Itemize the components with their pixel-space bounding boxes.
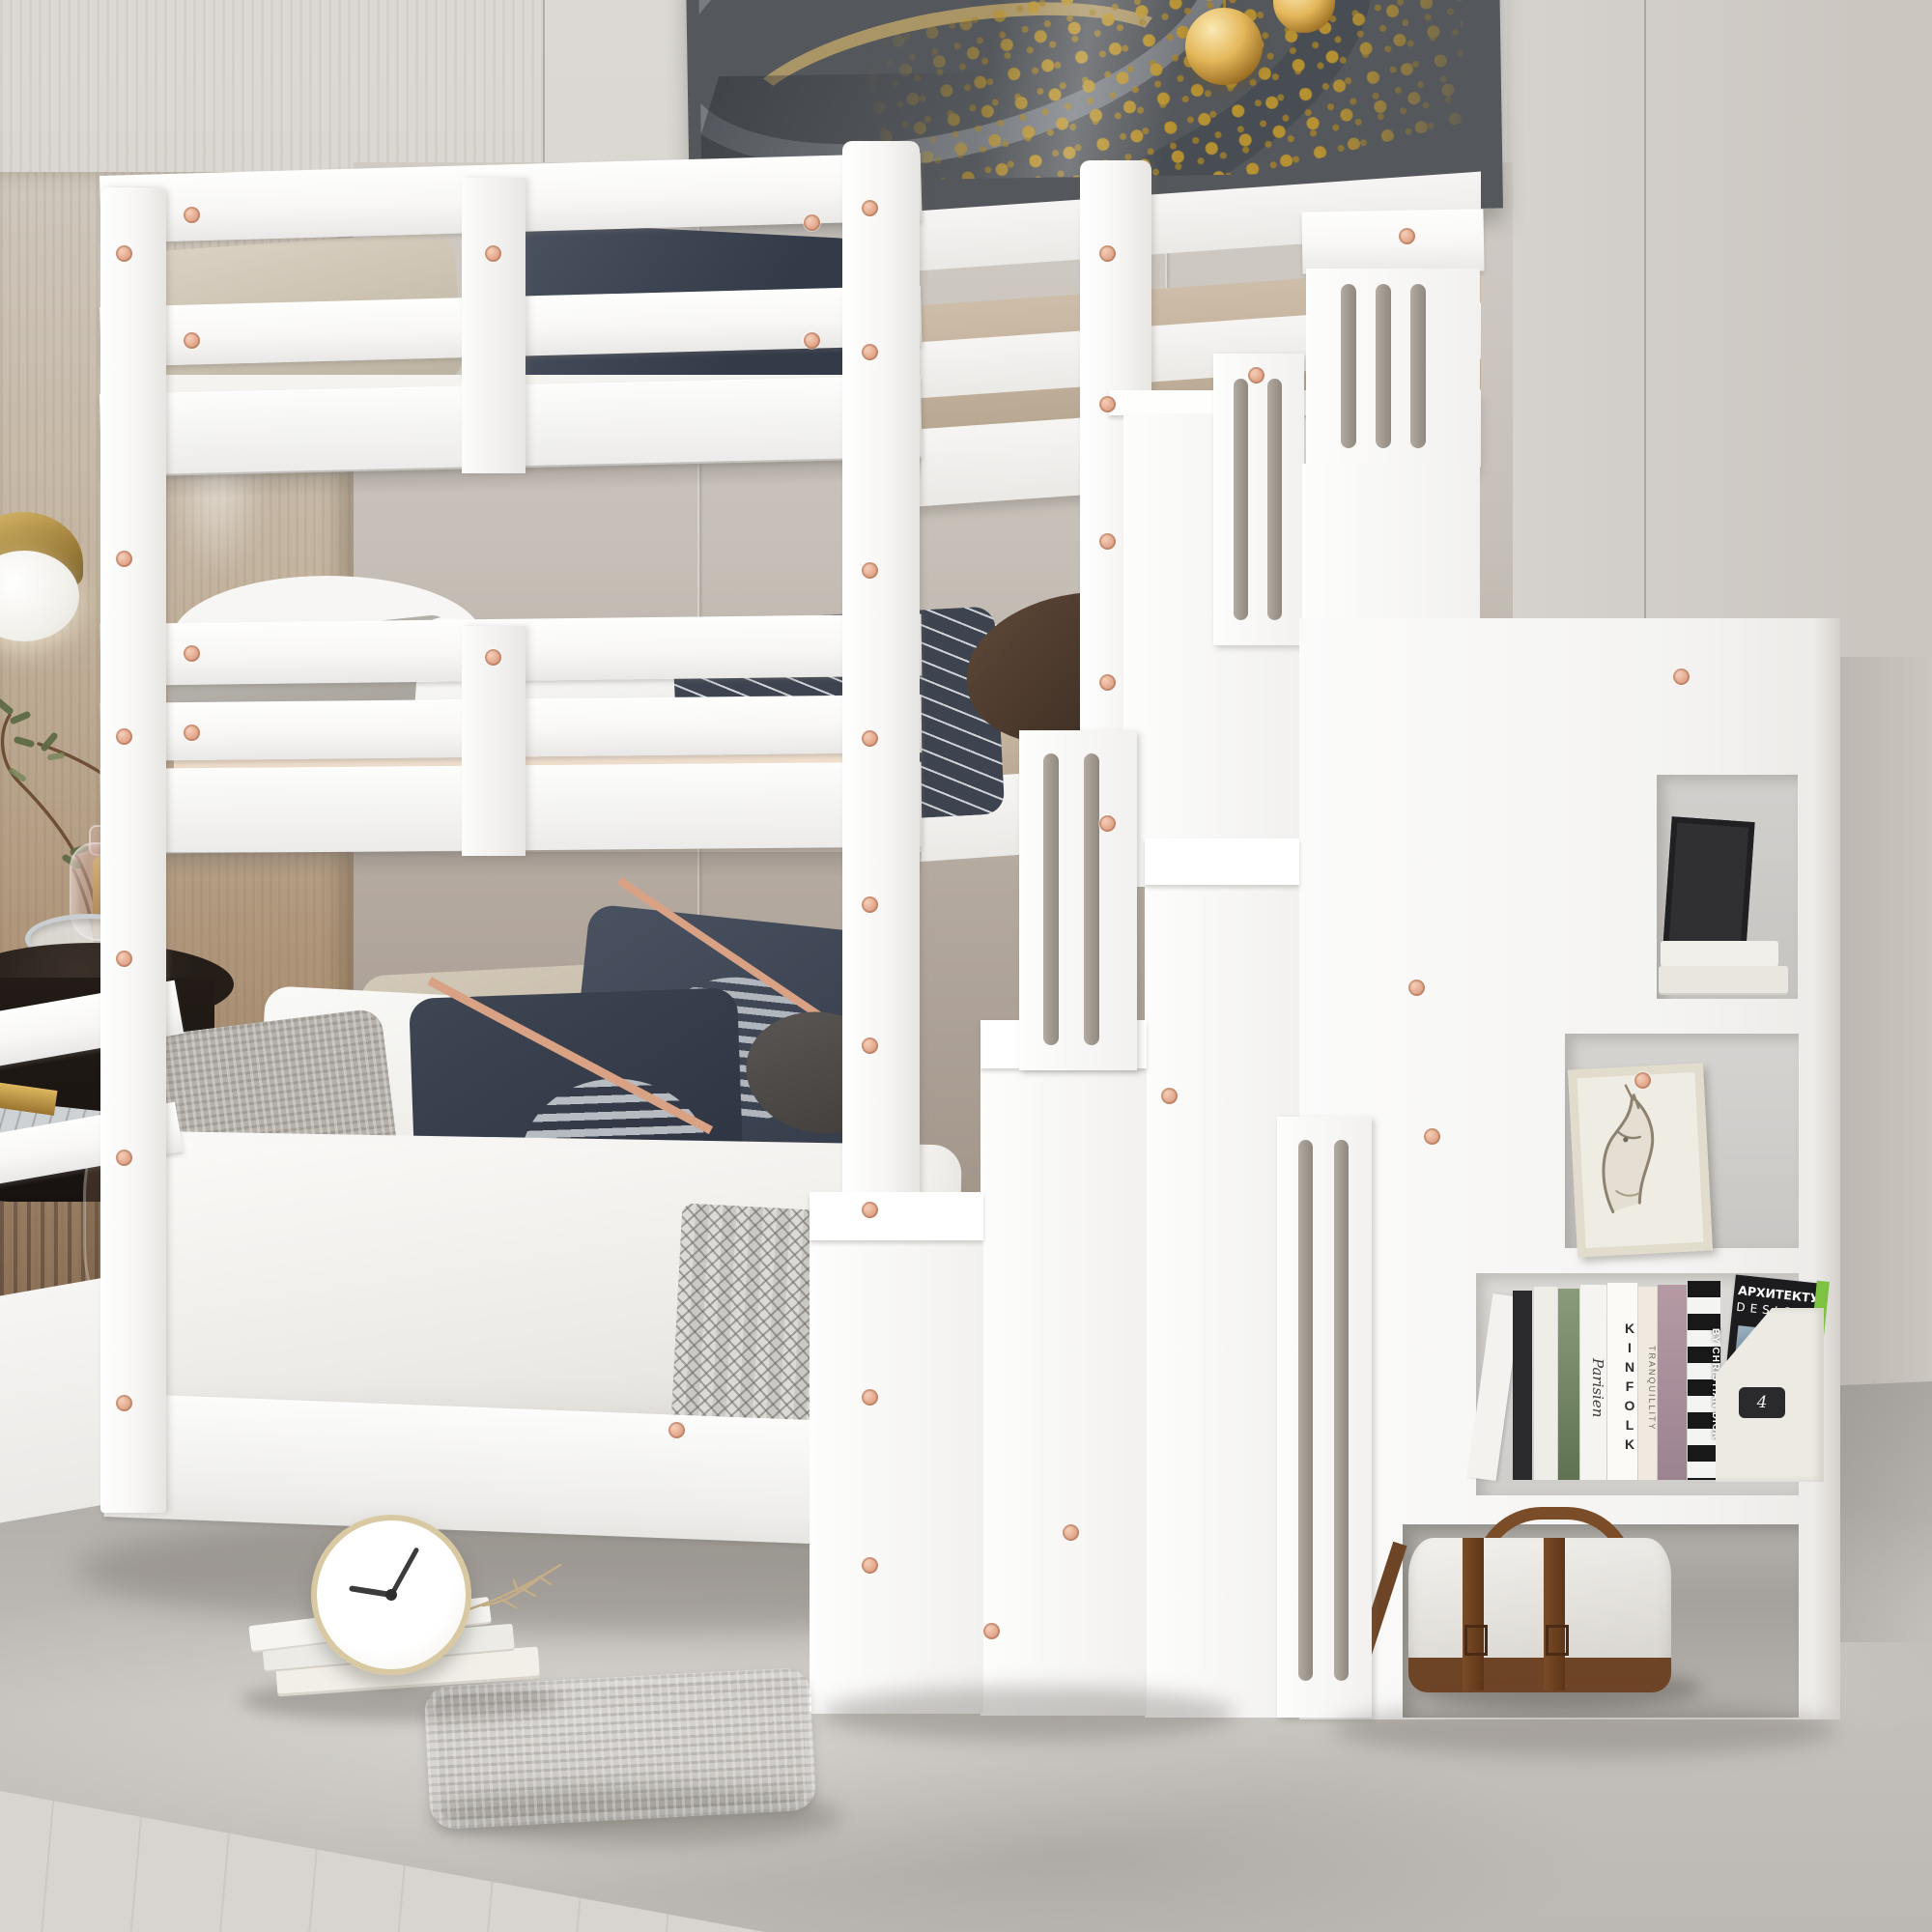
stair-rail-slot bbox=[1234, 379, 1248, 620]
screw-icon bbox=[862, 1037, 878, 1054]
screw-icon bbox=[1099, 533, 1116, 550]
front-left-post bbox=[100, 187, 166, 1513]
screw-icon bbox=[116, 551, 132, 567]
screw-icon bbox=[116, 728, 132, 745]
spine-text: Parisien bbox=[1589, 1358, 1606, 1417]
stair-rail-slot bbox=[1341, 284, 1356, 448]
stair-rail-slot bbox=[1410, 284, 1426, 448]
duffel-buckle-icon bbox=[1546, 1625, 1569, 1656]
screw-icon bbox=[668, 1422, 685, 1438]
horse-picture-frame bbox=[1568, 1063, 1713, 1257]
book-spine-kinfolk: KINFOLK bbox=[1607, 1283, 1637, 1480]
screw-icon bbox=[1161, 1088, 1178, 1104]
file-label-text: 4 bbox=[1757, 1393, 1768, 1412]
screw-icon bbox=[184, 207, 200, 223]
screw-icon bbox=[862, 730, 878, 747]
unit-floor-shadow bbox=[1333, 1702, 1835, 1756]
screw-icon bbox=[804, 332, 820, 349]
screw-icon bbox=[184, 332, 200, 349]
screw-icon bbox=[184, 645, 200, 662]
stair-step-2 bbox=[980, 1020, 1147, 1716]
stacked-book bbox=[1659, 966, 1788, 993]
screw-icon bbox=[1408, 980, 1425, 996]
stair-rail-slot bbox=[1334, 1140, 1349, 1681]
screw-icon bbox=[1063, 1524, 1079, 1541]
stair-step-1 bbox=[810, 1192, 983, 1714]
screw-icon bbox=[116, 1395, 132, 1411]
stair-rail-panel-upper bbox=[1213, 354, 1304, 645]
stair-rail-slot bbox=[1376, 284, 1391, 448]
duffel-buckle-icon bbox=[1464, 1625, 1488, 1656]
duffel-strap bbox=[1544, 1538, 1565, 1690]
clock-center-dot bbox=[385, 1589, 398, 1602]
screw-icon bbox=[1424, 1128, 1440, 1145]
screw-icon bbox=[1673, 668, 1690, 685]
stair-rail-panel-lower bbox=[1277, 1117, 1372, 1718]
screw-icon bbox=[1399, 228, 1415, 244]
stair-rail-slot bbox=[1043, 753, 1059, 1045]
screw-icon bbox=[1634, 1072, 1651, 1089]
wall-seam bbox=[543, 0, 545, 172]
storage-upper-door bbox=[1302, 464, 1480, 620]
screw-icon bbox=[1099, 674, 1116, 691]
screw-icon bbox=[862, 1557, 878, 1574]
book-spine-dior: BY CHRISTIAN DIOR bbox=[1688, 1281, 1720, 1480]
storage-unit-edge-shade bbox=[1814, 618, 1840, 1719]
spine-text: TRANQUILLITY bbox=[1647, 1346, 1657, 1432]
screw-icon bbox=[116, 1150, 132, 1166]
screw-icon bbox=[116, 245, 132, 262]
screw-icon bbox=[983, 1623, 1000, 1639]
book-spine-tranquillity: TRANQUILLITY bbox=[1638, 1287, 1657, 1480]
screw-icon bbox=[1099, 396, 1116, 412]
stair-rail-panel-mid bbox=[1019, 730, 1137, 1070]
screw-icon bbox=[116, 951, 132, 967]
screw-icon bbox=[862, 1389, 878, 1406]
stacked-book bbox=[1661, 941, 1778, 966]
book-spine-parisien: Parisien bbox=[1580, 1285, 1606, 1480]
floor-pillow bbox=[423, 1667, 816, 1831]
screw-icon bbox=[862, 1202, 878, 1218]
bedroom-scene: KING bbox=[0, 0, 1932, 1932]
screw-icon bbox=[862, 344, 878, 360]
book-spine bbox=[1558, 1289, 1579, 1480]
stair-column-upper bbox=[1145, 838, 1299, 1718]
cubby-top bbox=[1657, 775, 1798, 999]
pendant-ball-icon bbox=[1185, 8, 1263, 85]
stair-head-rail-panel bbox=[1306, 269, 1480, 466]
book-spine bbox=[1513, 1291, 1532, 1480]
stair-rail-slot bbox=[1298, 1140, 1313, 1681]
file-holder-label: 4 bbox=[1739, 1387, 1785, 1418]
screw-icon bbox=[485, 649, 501, 666]
screw-icon bbox=[1099, 245, 1116, 262]
steps-floor-shadow bbox=[821, 1687, 1236, 1741]
screw-icon bbox=[862, 562, 878, 579]
spine-text: KINFOLK bbox=[1622, 1321, 1637, 1456]
stair-rail-slot bbox=[1267, 379, 1282, 620]
screw-icon bbox=[485, 245, 501, 262]
horse-sketch-icon bbox=[1577, 1073, 1685, 1231]
wall-seam bbox=[1644, 0, 1646, 626]
stair-rail-slot bbox=[1084, 753, 1099, 1045]
cubby-open-base bbox=[1403, 1524, 1799, 1718]
duffel-base bbox=[1408, 1658, 1671, 1692]
screw-icon bbox=[862, 896, 878, 913]
screw-icon bbox=[862, 200, 878, 216]
top-bunk-center-stile bbox=[462, 178, 526, 473]
stair-column-top-face bbox=[1145, 838, 1299, 885]
cubby-bookshelf: Parisien KINFOLK TRANQUILLITY BY CHRISTI… bbox=[1476, 1273, 1799, 1495]
cubby-picture bbox=[1565, 1034, 1799, 1248]
book-spine bbox=[1658, 1285, 1687, 1480]
duffel-strap bbox=[1463, 1538, 1484, 1690]
stair-head-rail-cap bbox=[1301, 209, 1484, 273]
screw-icon bbox=[184, 724, 200, 741]
screw-icon bbox=[804, 214, 820, 231]
wall-shadow-right-of-unit bbox=[1840, 657, 1932, 1642]
book-spine bbox=[1534, 1287, 1557, 1480]
screw-icon bbox=[1099, 815, 1116, 832]
wood-panel-top-left bbox=[0, 0, 543, 176]
stair-step-1-top bbox=[810, 1192, 983, 1240]
screw-icon bbox=[1248, 367, 1264, 384]
